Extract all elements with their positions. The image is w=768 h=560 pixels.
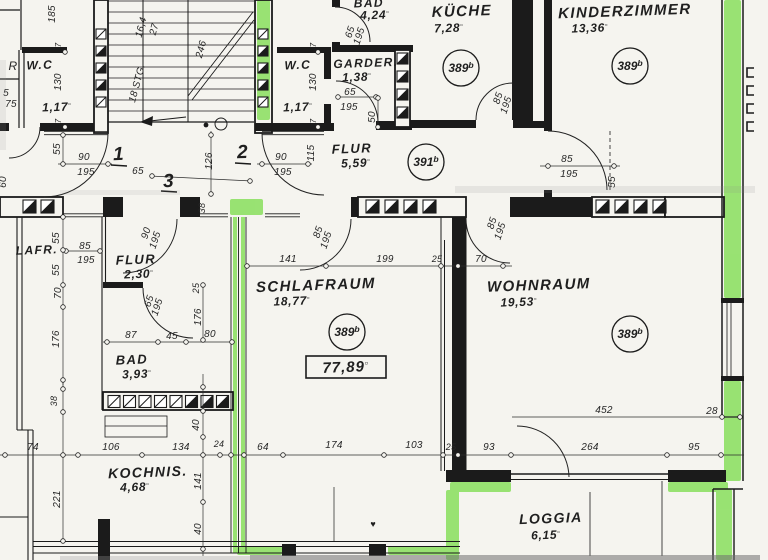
dimension-node xyxy=(260,162,265,167)
dimension-node xyxy=(61,215,66,220)
wall-hatch-square xyxy=(397,53,408,64)
label-dim-90: 90 xyxy=(275,152,287,163)
dimension-node xyxy=(61,539,66,544)
dimension-node xyxy=(242,453,247,458)
label-dim-38: 38 xyxy=(49,396,59,407)
label-area-1,17: 1,17▫ xyxy=(42,99,72,114)
dimension-node xyxy=(281,453,286,458)
label-dim-174: 174 xyxy=(325,440,343,451)
dimension-node xyxy=(456,453,461,458)
dimension-node xyxy=(61,305,66,310)
label-room-garder.: GARDER. xyxy=(333,55,399,71)
label-dim-264: 264 xyxy=(580,442,599,453)
wall-hatch-square xyxy=(41,200,54,213)
label-dim-r: R xyxy=(9,59,18,73)
dimension-node xyxy=(150,174,155,179)
label-dim-75: 75 xyxy=(5,99,17,110)
wall-hatch-square xyxy=(23,200,36,213)
dimension-node xyxy=(61,248,66,253)
label-room-bad: BAD xyxy=(115,351,148,367)
label-dim-85: 85 xyxy=(561,154,573,165)
label-dim-199: 199 xyxy=(376,254,394,265)
label-dim-452: 452 xyxy=(595,405,613,416)
wall-hatch-square xyxy=(258,46,268,56)
dimension-node xyxy=(316,50,321,55)
dimension-node xyxy=(98,249,103,254)
label-room-w.c: W.C xyxy=(26,58,53,73)
dimension-node xyxy=(209,192,214,197)
label-dim-7: 7 xyxy=(309,42,318,47)
dimension-node xyxy=(61,162,66,167)
dimension-node xyxy=(61,378,66,383)
dimension-node xyxy=(336,95,341,100)
wall-hatch-square xyxy=(258,63,268,73)
label-dim-55: 55 xyxy=(51,232,62,244)
dimension-node xyxy=(218,453,223,458)
dimension-node xyxy=(720,415,725,420)
label-big-1: 1 xyxy=(113,144,125,165)
wall-hatch-square xyxy=(96,97,106,107)
label-dim-141: 141 xyxy=(279,254,297,265)
label-big-2: 2 xyxy=(236,142,249,163)
dimension-node xyxy=(63,50,68,55)
label-dim-7: 7 xyxy=(54,118,63,123)
dimension-node xyxy=(612,164,617,169)
label-dim-90: 90 xyxy=(78,152,90,163)
wall-hatch-square xyxy=(258,97,268,107)
label-dim-50: 50 xyxy=(367,111,378,123)
label-dim-24: 24 xyxy=(213,439,225,449)
wall-hatch-square xyxy=(258,29,268,39)
dimension-node xyxy=(248,179,253,184)
label-big-3: 3 xyxy=(163,171,175,192)
floor-plan-drawing: 185RW.C1305751,17▫775590195116,42718 STG… xyxy=(0,0,768,560)
dimension-node xyxy=(201,500,206,505)
label-area-4,68: 4,68▫ xyxy=(119,479,150,494)
wall-hatch-square xyxy=(397,71,408,82)
label-area-1,17: 1,17▫ xyxy=(283,99,313,114)
dimension-node xyxy=(201,385,206,390)
dimension-node xyxy=(316,125,321,130)
dimension-node xyxy=(61,453,66,458)
label-dim-126: 126 xyxy=(204,152,215,170)
label-dim-40: 40 xyxy=(191,419,202,431)
label-dim-93: 93 xyxy=(483,442,495,453)
dimension-node xyxy=(209,133,214,138)
dimension-node xyxy=(184,340,189,345)
label-dim-25: 25 xyxy=(431,254,443,264)
dimension-node xyxy=(201,283,206,288)
wall-hatch-square xyxy=(96,29,106,39)
dimension-node xyxy=(61,133,66,138)
label-dim-64: 64 xyxy=(257,442,269,453)
label-area-7,28: 7,28▫ xyxy=(434,20,464,35)
dimension-node xyxy=(546,164,551,169)
dimension-node xyxy=(201,409,206,414)
label-dim-195: 195 xyxy=(560,169,578,180)
dimension-node xyxy=(382,453,387,458)
label-area-2,30: 2,30▫ xyxy=(123,266,154,281)
dimension-node xyxy=(439,264,444,269)
label-dim-103: 103 xyxy=(405,440,423,451)
label-area-4,24: 4,24▫ xyxy=(359,7,390,22)
scanned-floor-plan-page: 185RW.C1305751,17▫775590195116,42718 STG… xyxy=(0,0,768,560)
wall-hatch-square xyxy=(366,200,379,213)
dimension-node xyxy=(719,453,724,458)
dimension-node xyxy=(509,453,514,458)
wall-hatch-square xyxy=(615,200,628,213)
label-dim-60: 60 xyxy=(0,176,9,188)
dimension-node xyxy=(140,453,145,458)
label-dim-28: 28 xyxy=(705,406,718,417)
label-area-6,15: 6,15▫ xyxy=(531,527,561,542)
label-dim-38: 38 xyxy=(197,203,207,214)
label-room-w.c: W.C xyxy=(284,58,311,73)
label-dim-55: 55 xyxy=(51,264,62,276)
label-room-loggia: LOGGIA xyxy=(519,509,583,527)
wall-hatch-square xyxy=(217,396,229,408)
label-dim-176: 176 xyxy=(193,308,204,326)
label-dim-134: 134 xyxy=(172,442,190,453)
dimension-node xyxy=(61,387,66,392)
label-dim-45: 45 xyxy=(166,331,178,342)
label-dim-25: 25 xyxy=(445,442,457,452)
label-area-19,53: 19,53▫ xyxy=(500,294,537,309)
label-dim-55: 55 xyxy=(52,143,63,155)
label-room-flur: FLUR xyxy=(331,140,372,156)
label-dim-195: 195 xyxy=(77,167,95,178)
wall-hatch-square xyxy=(423,200,436,213)
dimension-node xyxy=(105,340,110,345)
label-dim-130: 130 xyxy=(308,73,319,91)
dimension-node xyxy=(738,415,743,420)
wall-hatch-square xyxy=(155,396,167,408)
label-dim-87: 87 xyxy=(125,330,137,341)
label-blot--: ♥ xyxy=(370,519,375,529)
wall-hatch-square xyxy=(397,107,408,118)
dimension-node xyxy=(201,453,206,458)
dimension-node xyxy=(201,435,206,440)
label-dim-80: 80 xyxy=(204,329,216,340)
label-dim-221: 221 xyxy=(52,490,63,509)
label-area-5,59: 5,59▫ xyxy=(341,155,371,170)
dimension-node xyxy=(229,453,234,458)
label-dim-74: 74 xyxy=(27,442,39,453)
dimension-node xyxy=(324,264,329,269)
dimension-node xyxy=(376,96,381,101)
dimension-node xyxy=(61,410,66,415)
wall-hatch-square xyxy=(186,396,198,408)
label-dim-7: 7 xyxy=(309,118,318,123)
label-dim-176: 176 xyxy=(51,330,62,348)
dimension-node xyxy=(456,264,461,269)
label-area-3,93: 3,93▫ xyxy=(122,366,152,381)
label-boxed-77,89: 77,89▫ xyxy=(322,358,369,377)
dimension-node xyxy=(665,453,670,458)
label-dim-40: 40 xyxy=(193,523,204,535)
label-dim-130: 130 xyxy=(53,73,64,91)
wall-hatch-square xyxy=(96,63,106,73)
wall-hatch-square xyxy=(397,89,408,100)
wall-hatch-square xyxy=(653,200,666,213)
wall-hatch-square xyxy=(258,80,268,90)
wall-hatch-square xyxy=(596,200,609,213)
label-dim-115: 115 xyxy=(306,144,317,161)
dimension-node xyxy=(61,283,66,288)
label-dim-85: 85 xyxy=(79,241,91,252)
label-dim-195: 195 xyxy=(274,167,292,178)
wall-hatch-square xyxy=(96,46,106,56)
dimension-node xyxy=(441,453,446,458)
label-area-18,77: 18,77▫ xyxy=(273,293,310,308)
dimension-node xyxy=(156,340,161,345)
dimension-node xyxy=(230,340,235,345)
label-area-13,36: 13,36▫ xyxy=(571,20,608,35)
label-dim-195: 195 xyxy=(340,102,358,113)
label-dim-70: 70 xyxy=(475,254,487,265)
label-dim-65: 65 xyxy=(132,166,144,177)
label-dim-195: 195 xyxy=(77,255,95,266)
dimension-node xyxy=(201,547,206,552)
dimension-node xyxy=(376,125,381,130)
label-dim-185: 185 xyxy=(47,5,58,23)
dimension-node xyxy=(106,162,111,167)
dimension-node xyxy=(501,264,506,269)
dimension-node xyxy=(76,453,81,458)
label-dim-106: 106 xyxy=(102,442,120,453)
dimension-node xyxy=(245,264,250,269)
label-room-flur: FLUR xyxy=(115,251,156,267)
label-area-1,38: 1,38▫ xyxy=(342,69,372,84)
dimension-node xyxy=(63,125,68,130)
label-room-küche: KÜCHE xyxy=(431,2,492,21)
label-dim-70: 70 xyxy=(53,287,64,299)
label-dim-7: 7 xyxy=(54,42,63,47)
wall-hatch-square xyxy=(634,200,647,213)
wall-hatch-square xyxy=(385,200,398,213)
label-dim-141: 141 xyxy=(193,472,204,490)
label-dim-25: 25 xyxy=(191,282,201,294)
wall-hatch-square xyxy=(404,200,417,213)
wall-hatch-square xyxy=(108,396,120,408)
wall-hatch-square xyxy=(124,396,136,408)
wall-hatch-square xyxy=(139,396,151,408)
label-room-wohnraum: WOHNRAUM xyxy=(487,275,591,296)
dimension-node xyxy=(3,453,8,458)
label-dim-65: 65 xyxy=(344,87,356,98)
label-dim-95: 95 xyxy=(688,442,700,453)
wall-hatch-square xyxy=(170,396,182,408)
wall-hatch-square xyxy=(96,80,106,90)
